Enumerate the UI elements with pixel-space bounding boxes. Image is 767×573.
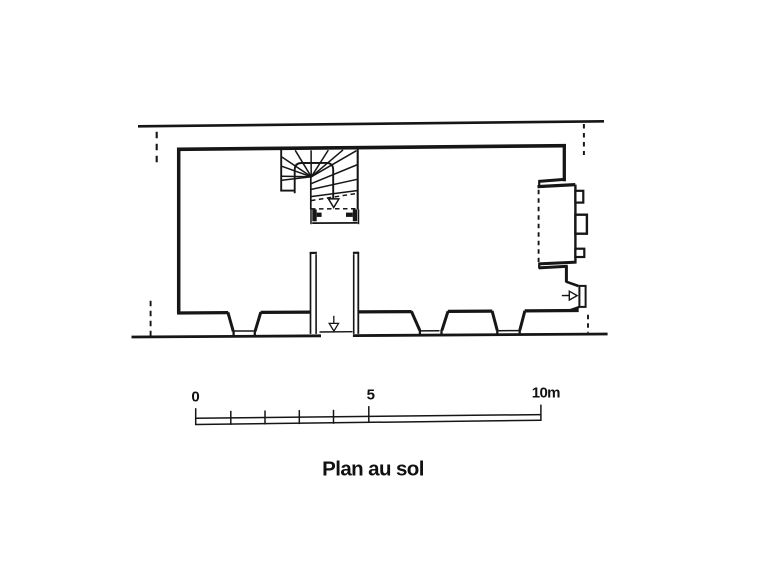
svg-text:5: 5 bbox=[367, 387, 375, 404]
svg-text:10m: 10m bbox=[532, 385, 560, 402]
svg-text:Plan au sol: Plan au sol bbox=[322, 458, 424, 481]
svg-text:0: 0 bbox=[191, 388, 199, 405]
